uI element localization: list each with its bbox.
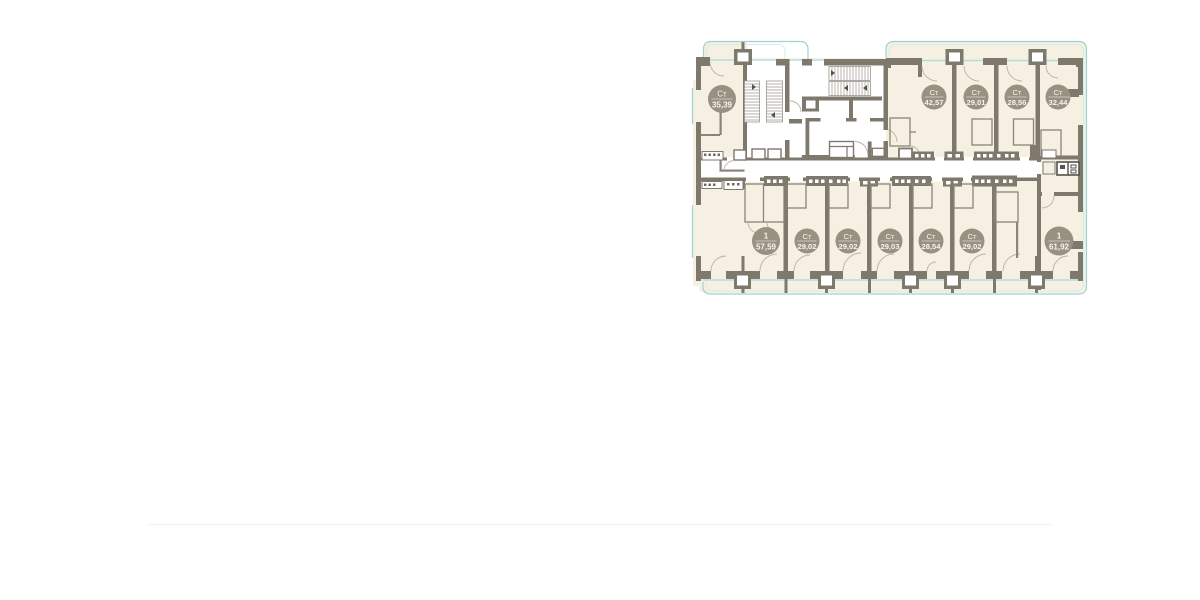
svg-text:29,03: 29,03 — [880, 242, 899, 251]
svg-text:Ст: Ст — [972, 88, 981, 97]
svg-text:57,59: 57,59 — [756, 243, 777, 252]
svg-text:Ст: Ст — [717, 90, 727, 99]
svg-text:Ст: Ст — [844, 232, 853, 241]
svg-text:Ст: Ст — [886, 232, 895, 241]
svg-text:Ст: Ст — [803, 232, 812, 241]
svg-text:28,56: 28,56 — [1007, 98, 1026, 107]
svg-text:28,54: 28,54 — [921, 242, 941, 251]
svg-text:32,44: 32,44 — [1048, 98, 1068, 107]
svg-text:Ст: Ст — [1054, 88, 1063, 97]
svg-text:29,02: 29,02 — [797, 242, 816, 251]
svg-text:Ст: Ст — [930, 88, 939, 97]
svg-text:29,01: 29,01 — [966, 98, 986, 107]
svg-text:Ст: Ст — [968, 232, 977, 241]
svg-text:61,92: 61,92 — [1049, 243, 1070, 252]
svg-text:29,02: 29,02 — [838, 242, 857, 251]
svg-text:1: 1 — [1057, 232, 1062, 241]
svg-text:42,57: 42,57 — [924, 98, 943, 107]
svg-text:Ст: Ст — [1013, 88, 1022, 97]
svg-text:1: 1 — [764, 232, 769, 241]
svg-text:35,39: 35,39 — [712, 101, 733, 110]
svg-text:29,02: 29,02 — [962, 242, 981, 251]
svg-text:Ст: Ст — [927, 232, 936, 241]
